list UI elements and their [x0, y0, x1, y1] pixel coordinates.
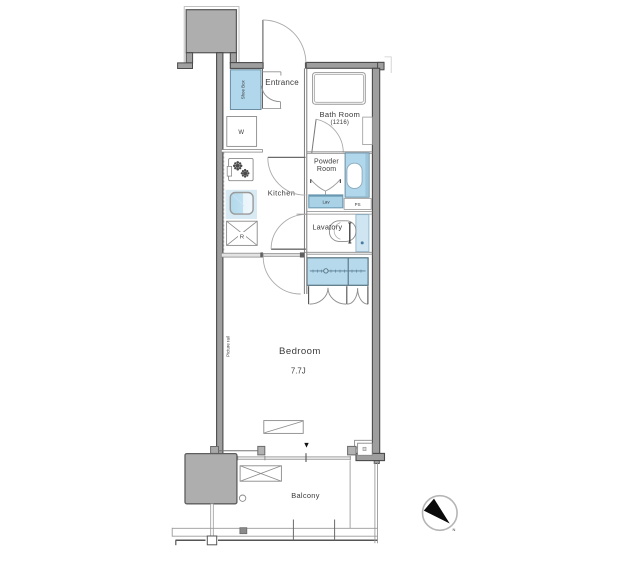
- svg-text:Lavatory: Lavatory: [312, 222, 342, 231]
- svg-text:Room: Room: [317, 166, 336, 173]
- svg-text:W: W: [238, 130, 244, 136]
- svg-text:(1216): (1216): [331, 120, 350, 126]
- svg-text:Bedroom: Bedroom: [279, 346, 321, 357]
- svg-text:Shoe Box: Shoe Box: [241, 79, 246, 99]
- svg-text:Balcony: Balcony: [291, 491, 319, 500]
- svg-text:7.7J: 7.7J: [291, 366, 306, 375]
- svg-text:Picture rail: Picture rail: [225, 336, 230, 357]
- svg-text:Entrance: Entrance: [265, 78, 299, 87]
- svg-text:R: R: [240, 235, 244, 241]
- svg-text:N: N: [453, 527, 456, 532]
- svg-text:PS: PS: [355, 202, 361, 207]
- svg-text:Powder: Powder: [314, 158, 339, 165]
- svg-text:Lav: Lav: [322, 200, 330, 205]
- svg-text:Kitchen: Kitchen: [268, 189, 295, 198]
- svg-text:Bath Room: Bath Room: [319, 110, 360, 119]
